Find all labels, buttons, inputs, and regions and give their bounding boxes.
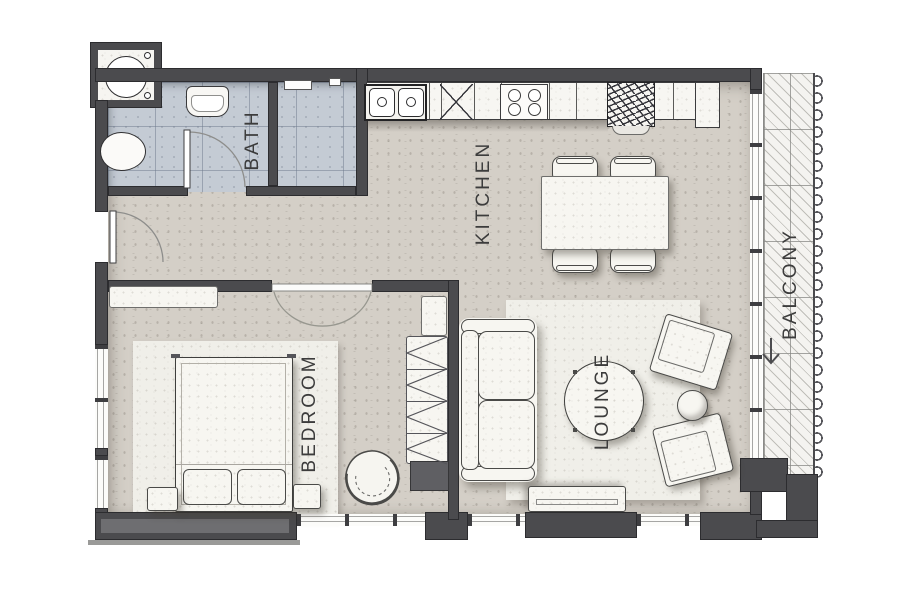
room-label-lounge: LOUNGE	[591, 321, 615, 481]
room-label-bath: BATH	[241, 60, 265, 220]
entry-door-arc	[113, 212, 163, 262]
wardrobe-door-chevrons	[407, 337, 447, 464]
room-label-balcony: BALCONY	[779, 204, 803, 364]
entry-door-leaf	[110, 211, 116, 263]
bedroom-door-track	[272, 284, 372, 291]
linework-overlay	[0, 0, 900, 602]
bath-door-arc	[189, 132, 245, 187]
floor-plan: BATH KITCHEN BALCONY BEDROOM LOUNGE	[0, 0, 900, 602]
room-label-kitchen: KITCHEN	[472, 113, 496, 273]
balcony-direction-arrow-icon	[763, 338, 779, 363]
bedroom-door-arc	[274, 292, 371, 326]
tub-chair	[339, 444, 405, 511]
room-label-bedroom: BEDROOM	[298, 333, 322, 493]
bath-door-leaf	[184, 130, 190, 188]
